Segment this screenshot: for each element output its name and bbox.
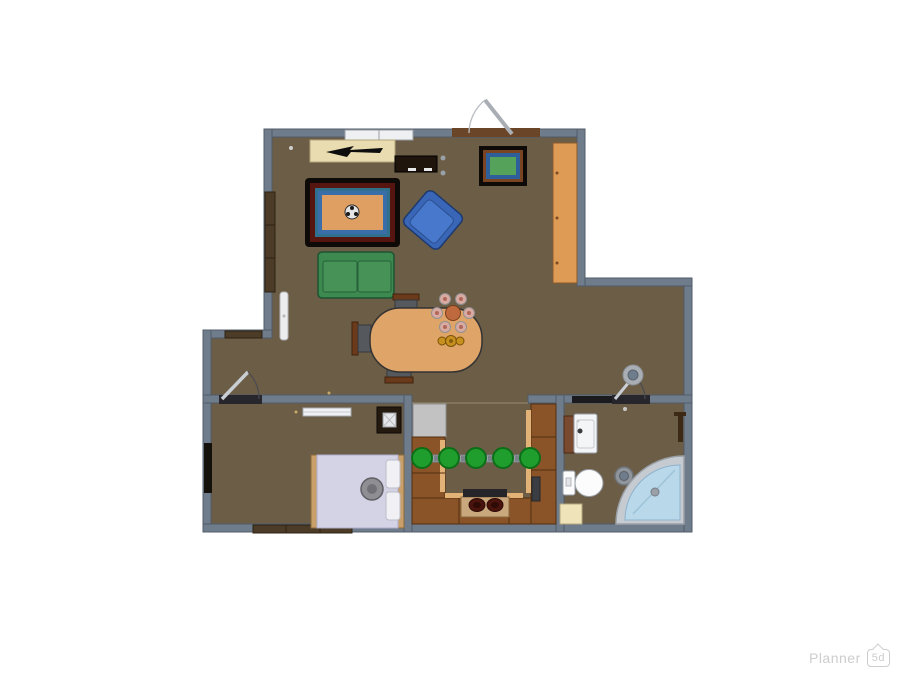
toilet[interactable] [575, 470, 603, 497]
dining-chair-left[interactable] [358, 325, 371, 352]
pendant-light-3[interactable] [466, 448, 486, 468]
ceiling-lamp-inner [628, 370, 638, 380]
floor-plan-canvas [0, 0, 900, 675]
table-centerpiece-dot [449, 339, 453, 343]
wardrobe-handle-1 [556, 172, 559, 175]
flower-1-center [467, 311, 471, 315]
spot-dot-2 [441, 156, 446, 161]
flower-4-center [435, 311, 439, 315]
spot-dot-6 [623, 407, 627, 411]
spot-dot-4 [295, 411, 298, 414]
wall-left-lower [203, 330, 211, 532]
light-track-knob-3 [488, 456, 492, 461]
soccer-ball-dot-1 [350, 206, 354, 210]
watermark-brand-text: Planner [809, 650, 861, 666]
dining-chair-left-back [352, 322, 358, 355]
window-living-left[interactable] [265, 192, 275, 292]
window-bedroom-left[interactable] [204, 443, 212, 493]
spot-dot-3 [441, 171, 446, 176]
soccer-ball-dot-3 [354, 212, 358, 216]
bed-round-cushion-inner [367, 484, 377, 494]
flower-6-center [459, 325, 463, 329]
vanity-side [564, 416, 574, 453]
dining-chair-top-back [393, 294, 419, 300]
radiator-mark [283, 315, 286, 318]
pendant-light-2[interactable] [439, 448, 459, 468]
bed-pillow-bottom [386, 492, 400, 520]
bed-pillow-top [386, 460, 400, 488]
pendant-light-1[interactable] [412, 448, 432, 468]
spot-dot-1 [289, 146, 293, 150]
wall-right-upper [577, 129, 585, 286]
wardrobe-handle-2 [556, 217, 559, 220]
flower-2-center [459, 297, 463, 301]
flower-arrangement-pot[interactable] [446, 306, 461, 321]
light-track-knob-4 [515, 456, 519, 461]
pendant-light-5[interactable] [520, 448, 540, 468]
floor-drain-inner [620, 472, 629, 481]
flower-3-center [443, 297, 447, 301]
sink-faucet [578, 429, 583, 434]
wall-right-mid [577, 278, 692, 286]
stove-back-bar [463, 489, 507, 497]
hall-floor [211, 338, 272, 395]
wardrobe-handle-3 [556, 262, 559, 265]
towel-rail-hook [674, 412, 686, 416]
bathroom-mirror[interactable] [572, 396, 612, 403]
stove-burner-left-inner [473, 502, 481, 508]
sofa-cushion-left [323, 261, 357, 292]
laundry-basket[interactable] [560, 504, 582, 524]
sofa-cushion-right [358, 261, 391, 292]
toilet-flush-button [566, 478, 571, 486]
towel-rail[interactable] [678, 415, 683, 442]
light-track-knob-1 [434, 456, 438, 461]
stove-burner-right-inner [491, 502, 499, 508]
spot-dot-7 [577, 420, 580, 423]
shower-knob [651, 488, 659, 496]
dishwasher-front[interactable] [532, 477, 540, 501]
window-hall[interactable] [225, 331, 262, 338]
table-centerpiece-left [438, 337, 446, 345]
kitchen-opening-floor [412, 395, 528, 403]
light-track-knob-2 [461, 456, 465, 461]
wall-art-center [490, 157, 516, 175]
watermark: Planner 5d [809, 649, 890, 667]
wall-bedroom-kitchen [404, 395, 412, 532]
spot-dot-5 [328, 392, 331, 395]
pendant-light-4[interactable] [493, 448, 513, 468]
media-cabinet-mark-2 [424, 168, 432, 171]
fridge[interactable] [413, 404, 446, 437]
soccer-ball-dot-2 [346, 212, 350, 216]
flower-5-center [443, 325, 447, 329]
dining-chair-bottom-back [385, 377, 413, 383]
media-cabinet-mark-1 [408, 168, 416, 171]
watermark-badge: 5d [867, 649, 890, 667]
floorplan-stage: Planner 5d [0, 0, 900, 675]
table-centerpiece-right [456, 337, 464, 345]
entrance-door-threshold[interactable] [452, 128, 540, 137]
wall-right-lower [684, 278, 692, 532]
